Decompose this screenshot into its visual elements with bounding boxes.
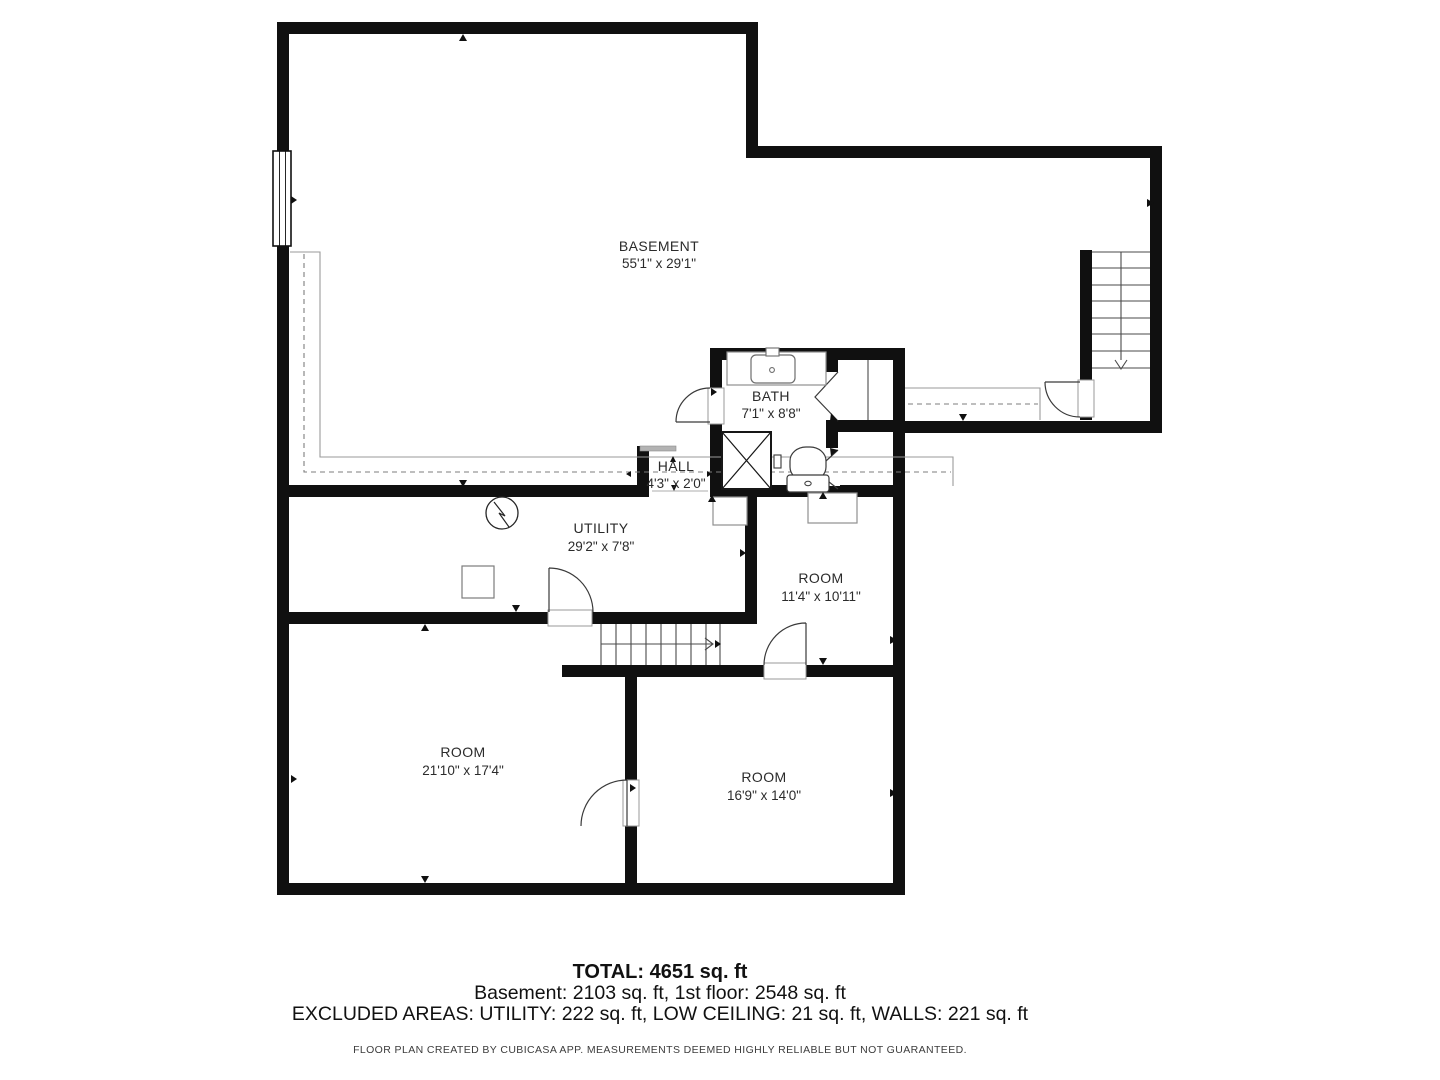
room-11x10-label: ROOM — [798, 570, 843, 586]
room-11x10-door — [764, 623, 806, 679]
utility-door — [548, 568, 593, 626]
room-16x14-dims: 16'9" x 14'0" — [727, 788, 801, 803]
staircase-lower-icon — [601, 624, 721, 665]
utility-appliance — [462, 566, 494, 598]
hall-shelf — [640, 446, 676, 451]
hall-dims: 4'3" x 2'0" — [646, 476, 705, 491]
bath-door — [676, 388, 724, 424]
stairwell-door — [1045, 380, 1094, 417]
utility-dims: 29'2" x 7'8" — [568, 539, 635, 554]
room-21x17-label: ROOM — [440, 744, 485, 760]
room-16x14-label: ROOM — [741, 769, 786, 785]
area-summary: TOTAL: 4651 sq. ft Basement: 2103 sq. ft… — [0, 961, 1320, 1025]
utility-cabinet — [713, 497, 747, 525]
room-dresser — [808, 493, 857, 523]
total-area: TOTAL: 4651 sq. ft — [0, 961, 1320, 983]
staircase-upper-icon — [1092, 252, 1150, 369]
excluded-areas: EXCLUDED AREAS: UTILITY: 222 sq. ft, LOW… — [0, 1004, 1320, 1025]
basement-dims: 55'1" x 29'1" — [622, 256, 696, 271]
room-21x17-dims: 21'10" x 17'4" — [422, 763, 504, 778]
floor-plan-page: BASEMENT 55'1" x 29'1" BATH 7'1" x 8'8" … — [0, 0, 1440, 1080]
low-ceiling-area-basement — [290, 252, 953, 486]
room-11x10-dims: 11'4" x 10'11" — [781, 589, 861, 604]
disclaimer: FLOOR PLAN CREATED BY CUBICASA APP. MEAS… — [0, 1044, 1320, 1056]
water-heater-icon — [486, 497, 518, 529]
toilet-icon — [787, 447, 829, 492]
window-icon — [273, 151, 291, 246]
shower-icon — [722, 432, 781, 489]
hall-label: HALL — [658, 458, 695, 474]
sink-vanity-icon — [727, 348, 826, 385]
bath-label: BATH — [752, 388, 790, 404]
utility-label: UTILITY — [574, 520, 629, 536]
bath-dims: 7'1" x 8'8" — [741, 406, 800, 421]
walls — [277, 22, 1162, 895]
basement-label: BASEMENT — [619, 238, 699, 254]
floor-areas: Basement: 2103 sq. ft, 1st floor: 2548 s… — [0, 983, 1320, 1004]
low-ceiling-area-corridor — [905, 388, 1040, 420]
floor-plan: BASEMENT 55'1" x 29'1" BATH 7'1" x 8'8" … — [0, 0, 1440, 1080]
